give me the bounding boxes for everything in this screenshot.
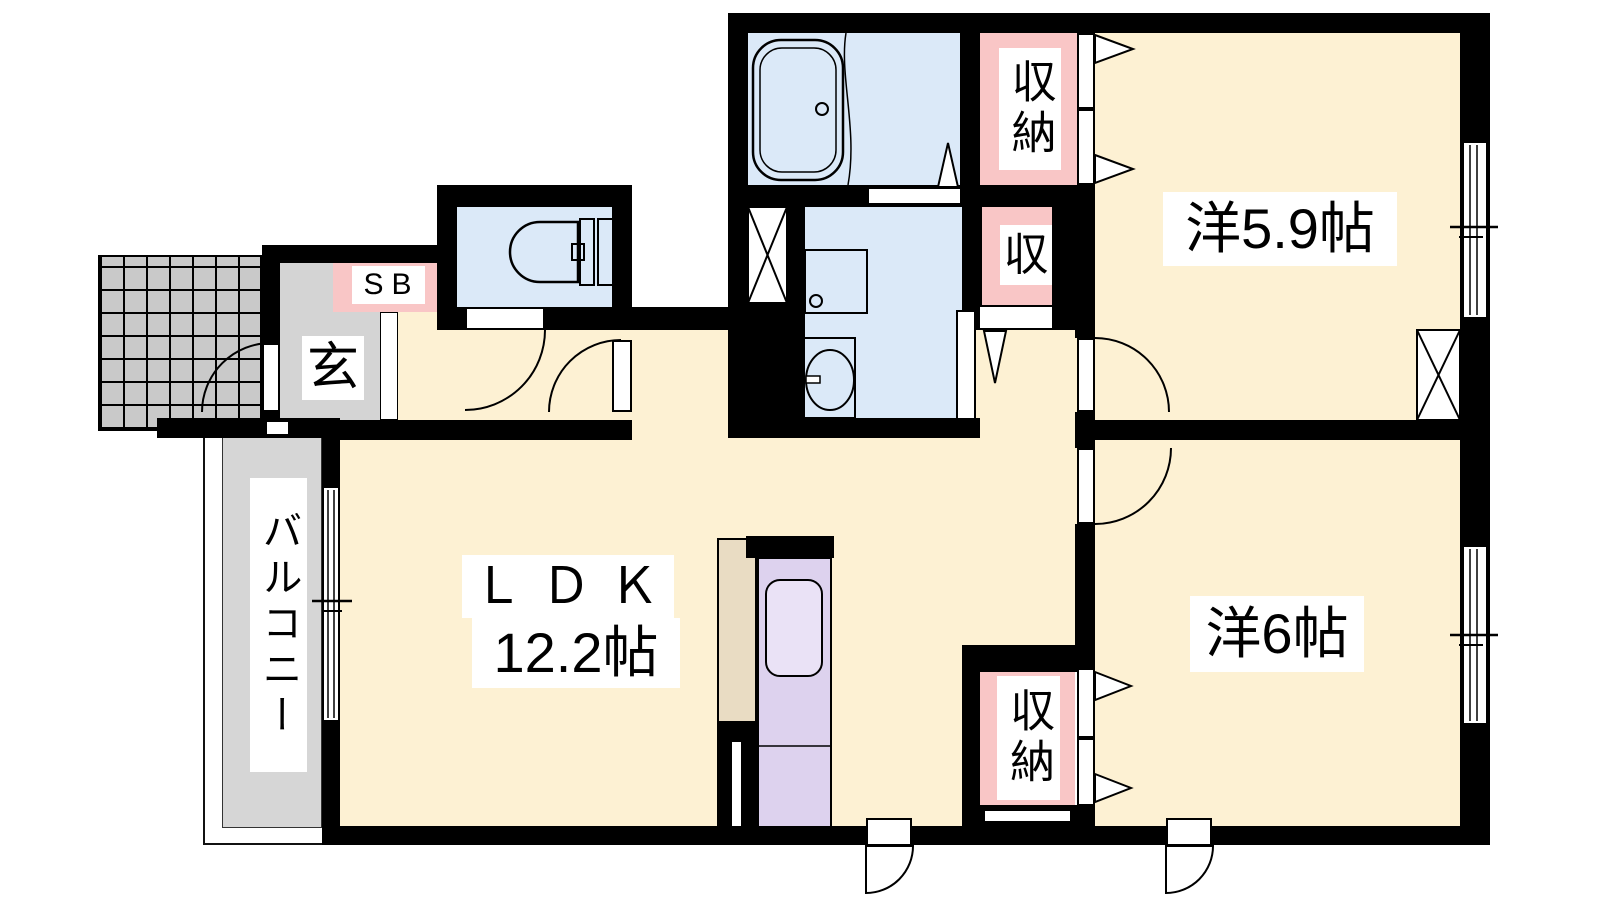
folding-door-triangle-icon: [984, 331, 1006, 383]
label-storage-top: 収納: [999, 48, 1061, 170]
folding-door-triangle-icon: [938, 143, 958, 187]
pipe-space-x-icon: [1417, 330, 1460, 420]
room-label-ldk: ＬＤＫ: [462, 555, 674, 618]
closet-door-triangle-icon: [1095, 155, 1133, 183]
label-storage-mid: 収: [1000, 225, 1052, 285]
door-arc-icon: [549, 340, 621, 412]
door-arc-icon: [465, 330, 545, 410]
pipe-space-x-icon: [748, 207, 787, 303]
door-arc-icon: [1095, 448, 1171, 524]
kitchen-sink-icon: [766, 580, 822, 676]
room-label-western6: 洋6帖: [1190, 596, 1364, 672]
washbasin-icon: [803, 338, 855, 418]
door-arc-icon: [1095, 338, 1169, 412]
floor-plan: 洋5.9帖 洋6帖 ＬＤＫ 12.2帖 バルコニー 玄 SB 収納 収 収納: [0, 0, 1600, 900]
door-arc-icon: [202, 343, 271, 412]
toilet-icon: [510, 219, 614, 285]
symbols-layer: [0, 0, 1600, 900]
door-swing-icon: [1166, 846, 1213, 893]
room-label-balcony: バルコニー: [250, 478, 307, 772]
label-storage-bottom: 収納: [997, 676, 1060, 800]
door-swing-icon: [866, 846, 913, 893]
closet-door-triangle-icon: [1095, 672, 1131, 700]
closet-door-triangle-icon: [1095, 35, 1133, 63]
room-label-western59: 洋5.9帖: [1163, 192, 1397, 266]
room-label-entrance: 玄: [302, 336, 364, 400]
room-label-ldk-size: 12.2帖: [472, 618, 680, 688]
label-shoe-box: SB: [352, 266, 425, 304]
washing-machine-icon: [805, 250, 867, 313]
closet-door-triangle-icon: [1095, 774, 1131, 802]
bathtub-icon: [753, 33, 851, 185]
